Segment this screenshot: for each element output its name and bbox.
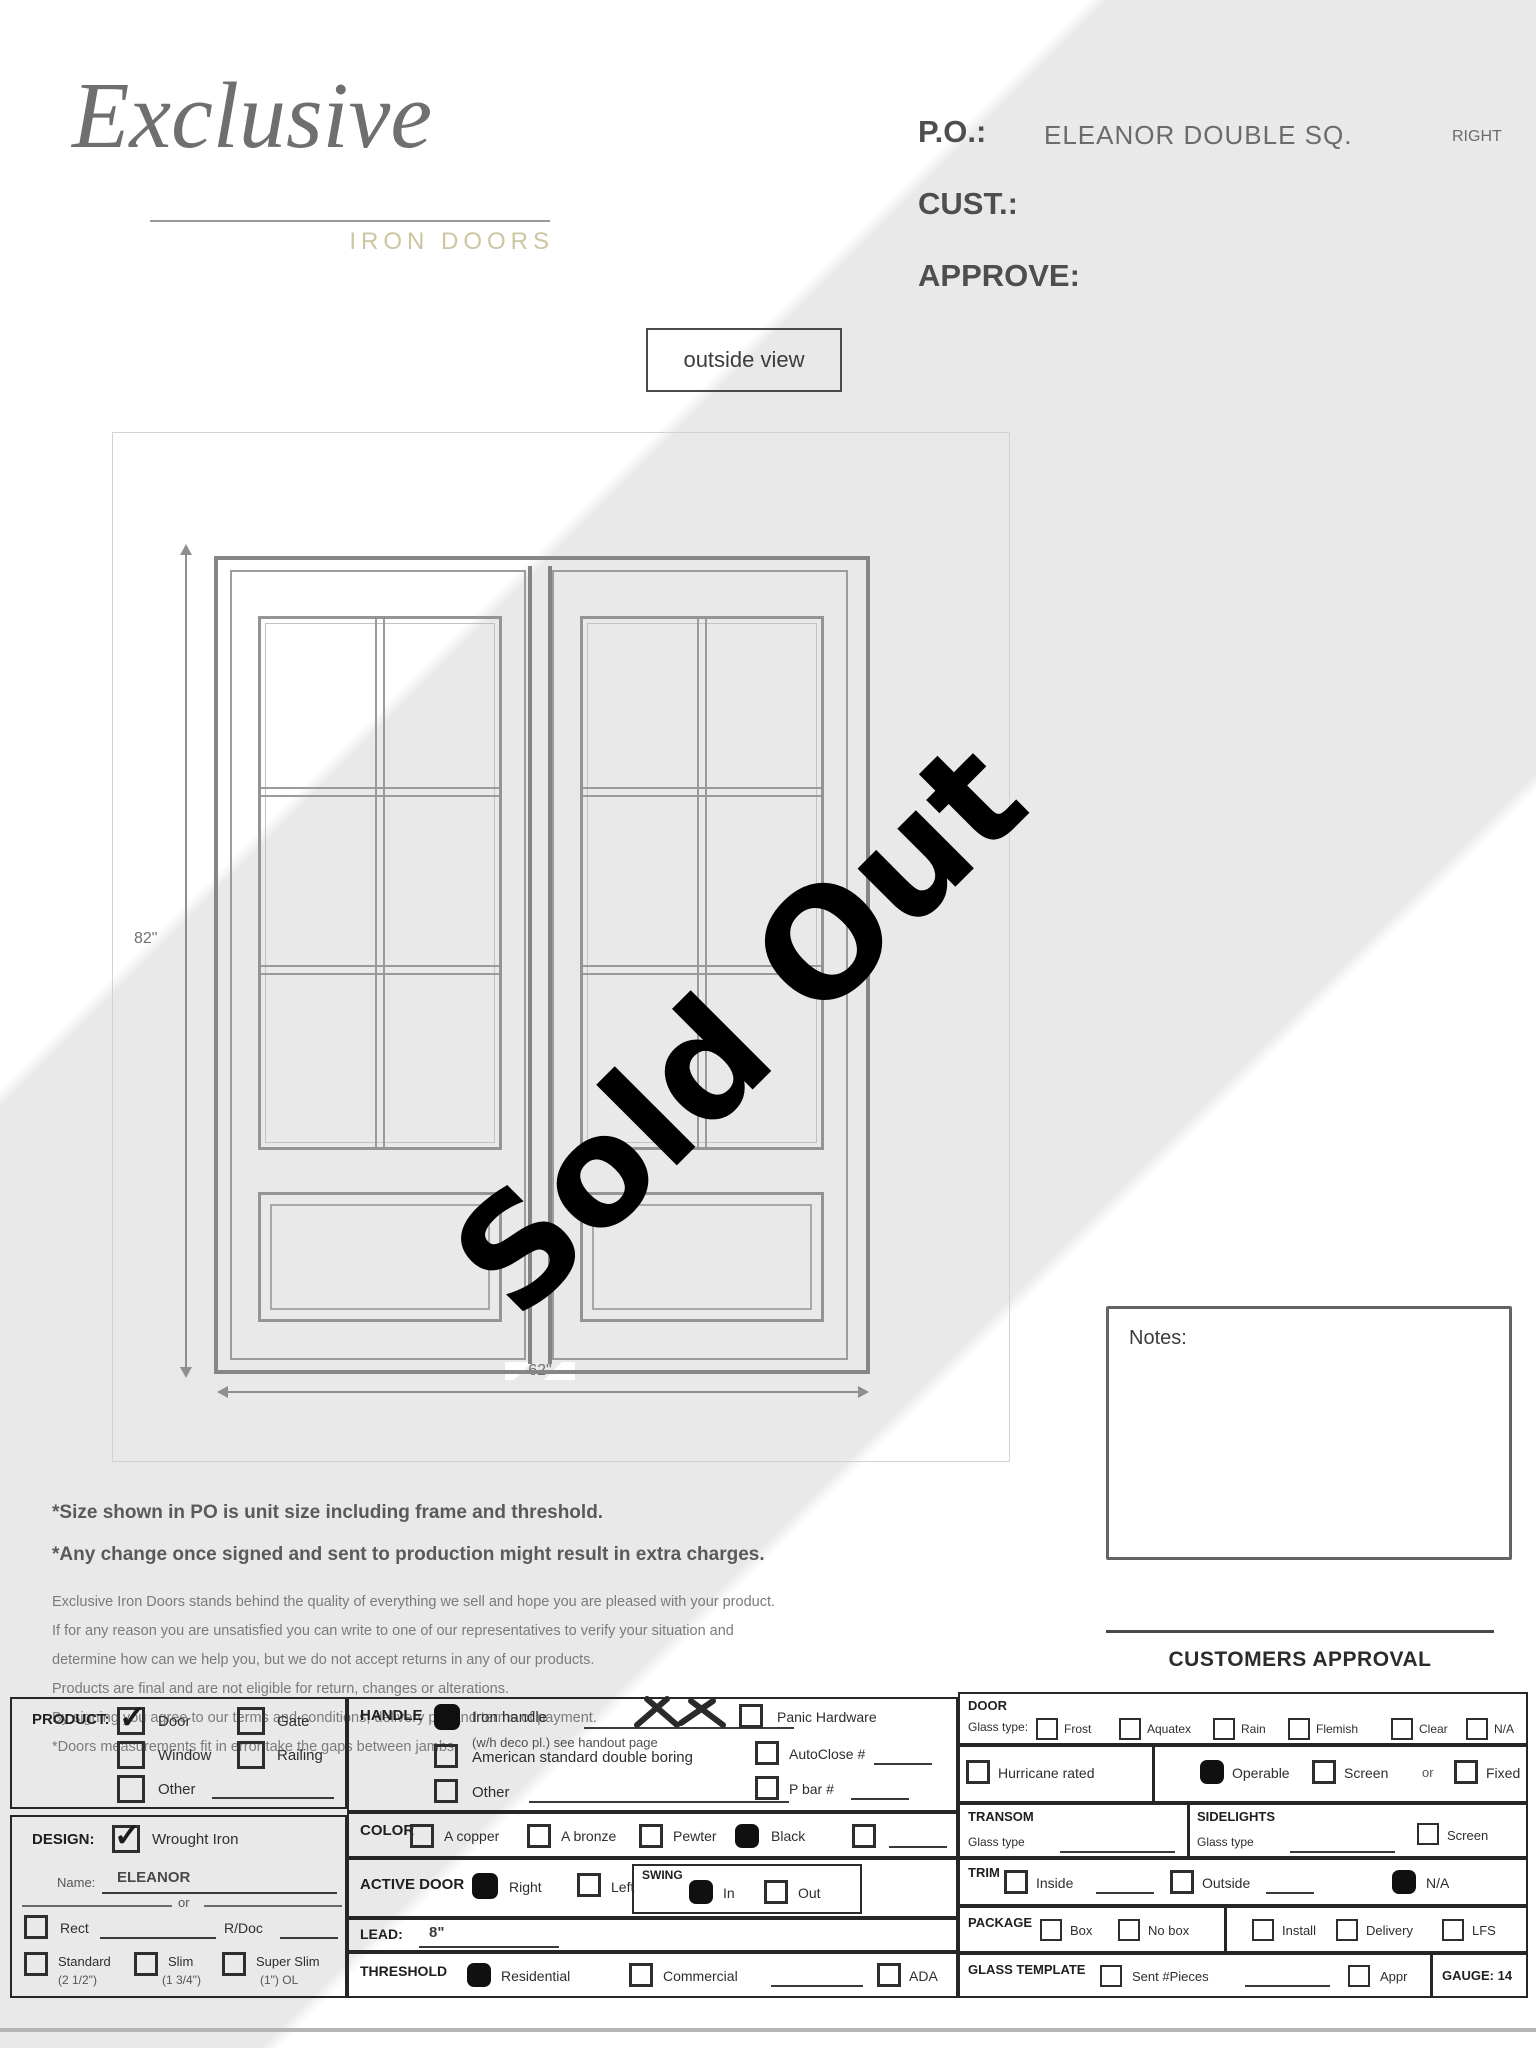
design-rdoc-line[interactable] <box>280 1917 338 1939</box>
frame-slim-sub: (1 3/4") <box>162 1973 201 1987</box>
signature-line[interactable] <box>1106 1630 1494 1633</box>
glass-clear-checkbox[interactable] <box>1391 1718 1413 1740</box>
lead-title: LEAD: <box>360 1926 403 1942</box>
frame-standard-checkbox[interactable] <box>24 1952 48 1976</box>
gauge-label: GAUGE: 14 <box>1442 1968 1512 1983</box>
handle-iron-note: (w/h deco pl.) see handout page <box>472 1735 658 1750</box>
operable-or-label: or <box>1422 1765 1434 1780</box>
transom-sidelights-section: TRANSOM Glass type SIDELIGHTS Glass type… <box>958 1803 1528 1858</box>
package-title: PACKAGE <box>968 1915 1032 1930</box>
lead-section: LEAD: 8" <box>347 1918 958 1952</box>
muntin-horizontal <box>261 787 499 797</box>
glass-template-title: GLASS TEMPLATE <box>968 1962 1085 1977</box>
handle-iron-label: Iron handle <box>472 1709 547 1726</box>
color-acopper-label: A copper <box>444 1828 499 1844</box>
hurricane-checkbox[interactable] <box>966 1760 990 1784</box>
transom-title: TRANSOM <box>968 1809 1034 1824</box>
product-gate-label: Gate <box>277 1713 310 1730</box>
glass-na-checkbox[interactable] <box>1466 1718 1488 1740</box>
cust-label: CUST.: <box>918 186 1018 222</box>
package-box-label: Box <box>1070 1923 1092 1938</box>
active-door-section: ACTIVE DOOR Right Left SWING In Out <box>347 1858 958 1918</box>
template-sent-checkbox[interactable] <box>1100 1965 1122 1987</box>
package-lfs-checkbox[interactable] <box>1442 1919 1464 1941</box>
handle-other-label: Other <box>472 1784 510 1801</box>
handle-title: HANDLE <box>360 1707 423 1724</box>
hurricane-label: Hurricane rated <box>998 1765 1095 1781</box>
product-window-checkbox[interactable] <box>117 1741 145 1769</box>
glass-na-label: N/A <box>1494 1722 1514 1736</box>
product-door-label: Door <box>158 1713 191 1730</box>
color-title: COLOR <box>360 1822 414 1839</box>
threshold-section: THRESHOLD Residential Commercial ADA <box>347 1952 958 1998</box>
logo-underline <box>150 220 550 222</box>
package-install-checkbox[interactable] <box>1252 1919 1274 1941</box>
trim-outside-line[interactable] <box>1266 1872 1314 1894</box>
color-abronze-label: A bronze <box>561 1828 616 1844</box>
glass-aquatex-label: Aquatex <box>1147 1722 1191 1736</box>
product-title: PRODUCT: <box>32 1711 110 1728</box>
color-black-checkbox[interactable] <box>735 1824 759 1848</box>
design-or-label: or <box>178 1895 190 1910</box>
height-dim-arrow-top <box>180 544 192 555</box>
glass-flemish-checkbox[interactable] <box>1288 1718 1310 1740</box>
handle-american-label: American standard double boring <box>472 1749 693 1766</box>
operable-section: Hurricane rated Operable Screen or Fixed <box>958 1745 1528 1803</box>
screen-label: Screen <box>1344 1765 1388 1781</box>
glass-frost-label: Frost <box>1064 1722 1091 1736</box>
logo-subtitle: IRON DOORS <box>320 228 554 256</box>
color-pewter-checkbox[interactable] <box>639 1824 663 1848</box>
template-sent-label: Sent #Pieces <box>1132 1969 1209 1984</box>
threshold-residential-label: Residential <box>501 1968 570 1984</box>
notes-box[interactable]: Notes: <box>1106 1306 1512 1560</box>
color-section: COLOR A copper A bronze Pewter Black <box>347 1812 958 1858</box>
design-name-line[interactable] <box>102 1872 337 1894</box>
product-other-label: Other <box>158 1781 196 1798</box>
height-dim-arrow-bottom <box>180 1367 192 1378</box>
swing-in-checkbox[interactable] <box>689 1880 713 1904</box>
transom-glass-line[interactable] <box>1060 1833 1175 1853</box>
active-left-label: Left <box>611 1879 634 1895</box>
glass-rain-checkbox[interactable] <box>1213 1718 1235 1740</box>
sidelights-screen-label: Screen <box>1447 1828 1488 1843</box>
threshold-commercial-checkbox[interactable] <box>629 1963 653 1987</box>
operable-divider <box>1152 1747 1155 1801</box>
width-dim-arrow-right <box>858 1386 869 1398</box>
po-value: ELEANOR DOUBLE SQ. <box>1044 120 1352 151</box>
swing-out-label: Out <box>798 1885 821 1901</box>
active-right-checkbox[interactable] <box>472 1873 498 1899</box>
autoclose-line[interactable] <box>874 1743 932 1765</box>
panic-hardware-checkbox[interactable] <box>739 1704 763 1728</box>
product-gate-checkbox[interactable] <box>237 1707 265 1735</box>
design-rect-label: Rect <box>60 1920 89 1936</box>
po-label: P.O.: <box>918 114 986 150</box>
package-delivery-checkbox[interactable] <box>1336 1919 1358 1941</box>
color-acopper-checkbox[interactable] <box>410 1824 434 1848</box>
sidelights-divider <box>1187 1805 1190 1856</box>
po-suffix: RIGHT <box>1452 128 1502 146</box>
sidelights-title: SIDELIGHTS <box>1197 1809 1275 1824</box>
handle-american-checkbox[interactable] <box>434 1744 458 1768</box>
glass-aquatex-checkbox[interactable] <box>1119 1718 1141 1740</box>
package-nobox-checkbox[interactable] <box>1118 1919 1140 1941</box>
disclaimer-p1: Exclusive Iron Doors stands behind the q… <box>52 1588 972 1617</box>
active-left-checkbox[interactable] <box>577 1873 601 1897</box>
glass-clear-label: Clear <box>1419 1722 1448 1736</box>
sidelights-glass-line[interactable] <box>1290 1833 1395 1853</box>
glass-rain-label: Rain <box>1241 1722 1266 1736</box>
template-sent-line[interactable] <box>1245 1967 1330 1987</box>
pbar-line[interactable] <box>851 1778 909 1800</box>
operable-checkbox[interactable] <box>1200 1760 1224 1784</box>
design-rect-line[interactable] <box>100 1917 216 1939</box>
color-black-label: Black <box>771 1828 805 1844</box>
frame-standard-label: Standard <box>58 1954 111 1969</box>
trim-inside-line[interactable] <box>1096 1872 1154 1894</box>
design-wrought-label: Wrought Iron <box>152 1831 238 1848</box>
disclaimer-p3: determine how can we help you, but we do… <box>52 1646 972 1675</box>
door-glass-title: DOOR <box>968 1698 1007 1713</box>
trim-outside-checkbox[interactable] <box>1170 1870 1194 1894</box>
threshold-ada-checkbox[interactable] <box>877 1963 901 1987</box>
approve-label: APPROVE: <box>918 258 1080 294</box>
autoclose-label: AutoClose # <box>789 1746 865 1762</box>
fixed-checkbox[interactable] <box>1454 1760 1478 1784</box>
package-box-checkbox[interactable] <box>1040 1919 1062 1941</box>
swing-title: SWING <box>642 1868 683 1882</box>
design-rdoc-label: R/Doc <box>224 1920 263 1936</box>
pbar-checkbox[interactable] <box>755 1776 779 1800</box>
template-appr-label: Appr <box>1380 1969 1407 1984</box>
package-divider <box>1224 1908 1227 1951</box>
package-nobox-label: No box <box>1148 1923 1189 1938</box>
threshold-commercial-line[interactable] <box>771 1965 863 1987</box>
handle-other-line[interactable] <box>529 1781 789 1803</box>
disclaimer-line-2: *Any change once signed and sent to prod… <box>52 1544 765 1566</box>
lead-line[interactable] <box>419 1926 559 1948</box>
package-lfs-label: LFS <box>1472 1923 1496 1938</box>
trim-inside-checkbox[interactable] <box>1004 1870 1028 1894</box>
glass-flemish-label: Flemish <box>1316 1722 1358 1736</box>
active-door-title: ACTIVE DOOR <box>360 1876 464 1893</box>
notes-label: Notes: <box>1129 1327 1187 1350</box>
outside-view-box: outside view <box>646 328 842 392</box>
width-dim-arrow-left <box>217 1386 228 1398</box>
customers-approval-label: CUSTOMERS APPROVAL <box>1106 1648 1494 1672</box>
frame-superslim-label: Super Slim <box>256 1954 320 1969</box>
product-door-checkbox[interactable] <box>117 1707 145 1735</box>
threshold-residential-checkbox[interactable] <box>467 1963 491 1987</box>
trim-na-label: N/A <box>1426 1875 1449 1891</box>
screen-checkbox[interactable] <box>1312 1760 1336 1784</box>
product-section: PRODUCT: Door Gate Window Railing Other <box>10 1697 347 1809</box>
swing-subsection: SWING In Out <box>632 1864 862 1914</box>
operable-label: Operable <box>1232 1765 1290 1781</box>
design-wrought-checkbox[interactable] <box>112 1825 140 1853</box>
design-title: DESIGN: <box>32 1831 95 1848</box>
panic-hardware-label: Panic Hardware <box>777 1709 877 1725</box>
trim-title: TRIM <box>968 1865 1000 1880</box>
package-section: PACKAGE Box No box Install Delivery LFS <box>958 1906 1528 1953</box>
color-other-line[interactable] <box>889 1826 947 1848</box>
color-abronze-checkbox[interactable] <box>527 1824 551 1848</box>
door-glass-type-label: Glass type: <box>968 1720 1028 1734</box>
product-railing-label: Railing <box>277 1747 323 1764</box>
product-other-checkbox[interactable] <box>117 1775 145 1803</box>
product-other-line[interactable] <box>212 1777 334 1799</box>
company-logo: Exclusive <box>72 62 432 170</box>
sidelights-glass-label: Glass type <box>1197 1835 1254 1849</box>
sidelights-screen-checkbox[interactable] <box>1417 1823 1439 1845</box>
pbar-label: P bar # <box>789 1781 834 1797</box>
design-section: DESIGN: Wrought Iron Name: ELEANOR or Re… <box>10 1815 347 1998</box>
trim-outside-label: Outside <box>1202 1875 1250 1891</box>
fixed-label: Fixed <box>1486 1765 1520 1781</box>
outside-view-label: outside view <box>683 347 804 373</box>
handwritten-scribble <box>629 1695 739 1729</box>
muntin-vertical <box>375 619 385 1147</box>
disclaimer-p2: If for any reason you are unsatisfied yo… <box>52 1617 972 1646</box>
swing-out-checkbox[interactable] <box>764 1880 788 1904</box>
muntin-horizontal <box>261 965 499 975</box>
trim-na-checkbox[interactable] <box>1392 1870 1416 1894</box>
glass-grid <box>258 616 502 1150</box>
threshold-title: THRESHOLD <box>360 1963 447 1979</box>
width-dim-line <box>222 1391 864 1393</box>
autoclose-checkbox[interactable] <box>755 1741 779 1765</box>
frame-superslim-checkbox[interactable] <box>222 1952 246 1976</box>
trim-section: TRIM Inside Outside N/A <box>958 1858 1528 1906</box>
muntin-horizontal <box>583 787 821 797</box>
handle-other-checkbox[interactable] <box>434 1779 458 1803</box>
threshold-commercial-label: Commercial <box>663 1968 738 1984</box>
gauge-divider <box>1430 1955 1433 1996</box>
design-name-label: Name: <box>57 1875 95 1890</box>
handle-section: HANDLE Iron handle (w/h deco pl.) see ha… <box>347 1697 958 1812</box>
transom-glass-label: Glass type <box>968 1835 1025 1849</box>
page-bottom-edge <box>0 2028 1536 2032</box>
design-rect-checkbox[interactable] <box>24 1915 48 1939</box>
disclaimer-line-1: *Size shown in PO is unit size including… <box>52 1502 603 1524</box>
handle-iron-checkbox[interactable] <box>434 1704 460 1730</box>
template-appr-checkbox[interactable] <box>1348 1965 1370 1987</box>
product-railing-checkbox[interactable] <box>237 1741 265 1769</box>
product-window-label: Window <box>158 1747 211 1764</box>
color-other-checkbox[interactable] <box>852 1824 876 1848</box>
color-pewter-label: Pewter <box>673 1828 717 1844</box>
design-or-line-right <box>204 1905 342 1907</box>
design-or-line-left <box>22 1905 172 1907</box>
frame-slim-label: Slim <box>168 1954 193 1969</box>
package-delivery-label: Delivery <box>1366 1923 1413 1938</box>
frame-standard-sub: (2 1/2") <box>58 1973 97 1987</box>
package-install-label: Install <box>1282 1923 1316 1938</box>
swing-in-label: In <box>723 1885 735 1901</box>
glass-template-section: GLASS TEMPLATE Sent #Pieces Appr GAUGE: … <box>958 1953 1528 1998</box>
height-dim-label: 82" <box>134 930 157 948</box>
threshold-ada-label: ADA <box>909 1968 938 1984</box>
frame-superslim-sub: (1") OL <box>260 1973 298 1987</box>
glass-frost-checkbox[interactable] <box>1036 1718 1058 1740</box>
order-form-page: Exclusive IRON DOORS P.O.: ELEANOR DOUBL… <box>0 0 1536 2048</box>
door-glass-section: DOOR Glass type: Frost Aquatex Rain Flem… <box>958 1692 1528 1745</box>
trim-inside-label: Inside <box>1036 1875 1073 1891</box>
height-dim-line <box>185 550 187 1372</box>
frame-slim-checkbox[interactable] <box>134 1952 158 1976</box>
active-right-label: Right <box>509 1879 542 1895</box>
